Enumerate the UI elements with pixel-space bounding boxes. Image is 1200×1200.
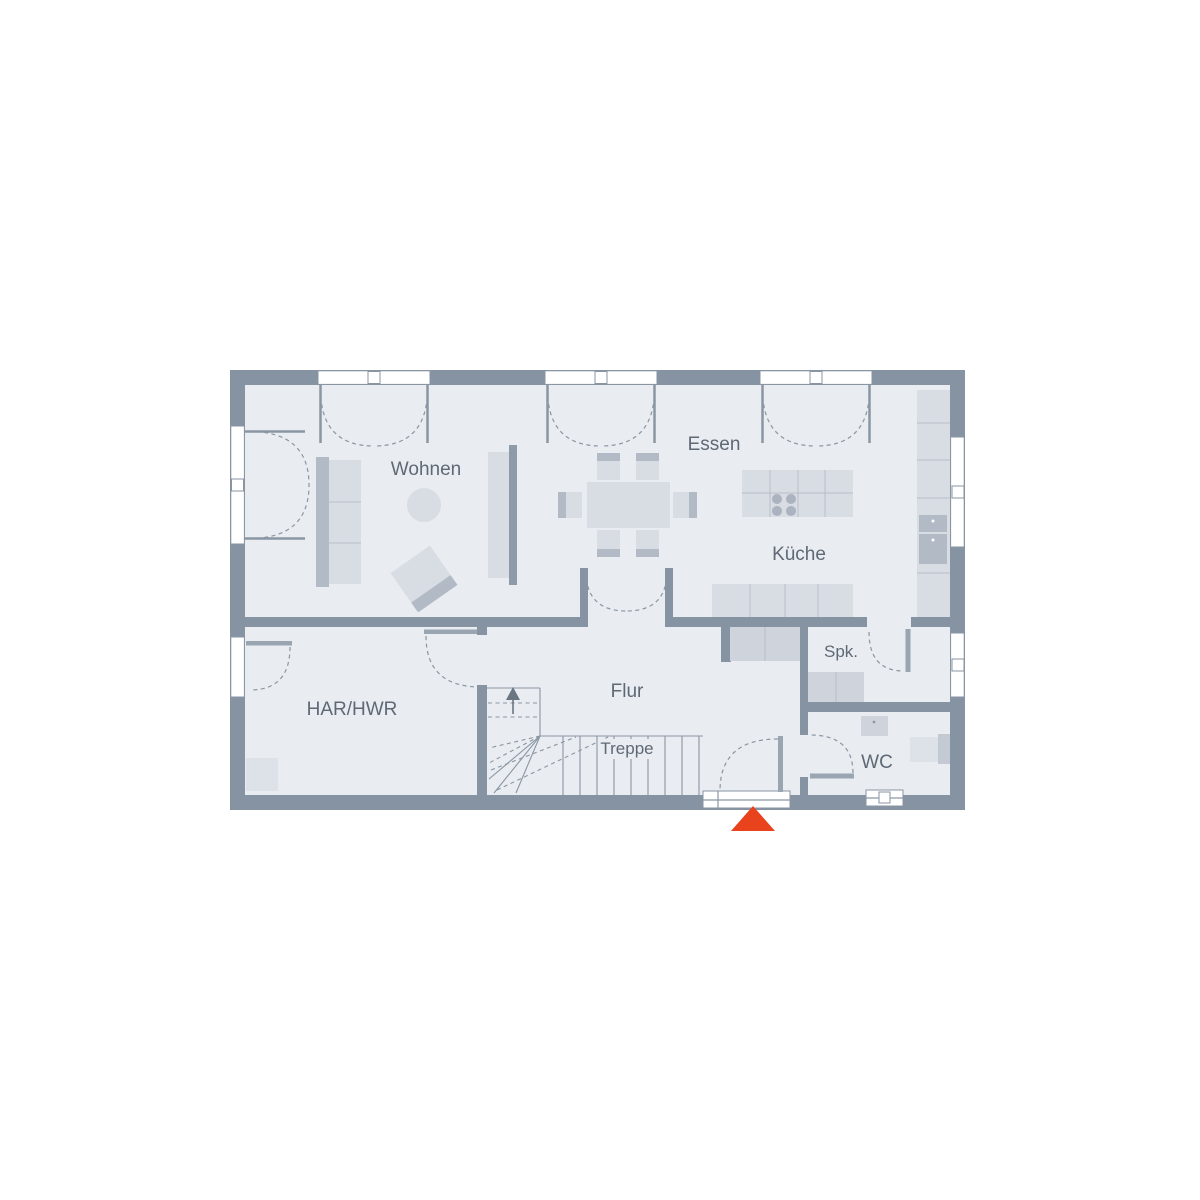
- window-handle-icon: [810, 372, 822, 384]
- wall-kueche-south: [673, 617, 867, 627]
- wall-har-door-stub: [477, 617, 487, 635]
- window-handle-icon: [952, 659, 964, 671]
- door-leaf-har-exterior: [246, 641, 292, 646]
- dining-chair: [673, 492, 697, 518]
- dining-chair: [597, 530, 620, 557]
- coffee-table: [407, 488, 441, 522]
- spk-cabinet: [808, 672, 864, 702]
- door-leaf-spk: [906, 629, 911, 672]
- entrance-door: [703, 791, 790, 808]
- door-leaf-wc: [810, 774, 854, 779]
- dining-chair: [597, 453, 620, 480]
- floor-plan: Wohnen Essen Küche Spk. Flur HAR/HWR Tre…: [0, 0, 1200, 1200]
- wall-stair-side: [477, 685, 487, 795]
- tv-sideboard: [488, 445, 517, 585]
- flur-opening-post-right: [665, 568, 673, 627]
- dining-chair: [636, 530, 659, 557]
- window-handle-icon: [232, 479, 244, 491]
- room-label-wc: WC: [861, 752, 893, 773]
- room-label-wohnen: Wohnen: [391, 459, 461, 480]
- room-label-spk: Spk.: [824, 642, 858, 661]
- window-handle-icon: [879, 792, 890, 803]
- sofa: [316, 457, 361, 587]
- room-label-essen: Essen: [688, 434, 741, 455]
- wall-wohnen-south: [245, 617, 580, 627]
- window-handle-icon: [595, 372, 607, 384]
- door-leaf-har-flur: [424, 630, 477, 635]
- dining-chair: [636, 453, 659, 480]
- kitchen-tall-units: [917, 390, 950, 617]
- flur-wardrobe: [730, 627, 800, 661]
- dining-table: [587, 482, 670, 528]
- wall-spk-north-east: [911, 617, 950, 627]
- door-har-west: [231, 637, 245, 697]
- wall-flur-wc-lower: [800, 777, 808, 795]
- door-leaf-entrance: [778, 736, 783, 792]
- window-wc-south: [866, 790, 903, 806]
- kitchen-counter-south: [712, 584, 853, 617]
- room-label-kueche: Küche: [772, 544, 826, 565]
- flur-opening-post-left: [580, 568, 588, 627]
- room-label-treppe: Treppe: [600, 739, 653, 758]
- wall-stub-wardrobe: [721, 627, 731, 662]
- wc-washbasin: [861, 716, 888, 736]
- kitchen-island: [742, 470, 853, 517]
- window-handle-icon: [368, 372, 380, 384]
- wc-toilet: [910, 734, 950, 764]
- window-handle-icon: [952, 486, 964, 498]
- wall-flur-spk: [800, 627, 808, 702]
- floor-plan-page: Wohnen Essen Küche Spk. Flur HAR/HWR Tre…: [0, 0, 1200, 1200]
- wall-flur-wc-upper: [800, 712, 808, 735]
- room-label-flur: Flur: [611, 681, 644, 702]
- utility-equipment: [246, 758, 278, 791]
- dining-chair: [558, 492, 582, 518]
- wall-spk-wc: [800, 702, 950, 712]
- oven-icon: [919, 515, 947, 532]
- room-label-har-hwr: HAR/HWR: [307, 699, 398, 720]
